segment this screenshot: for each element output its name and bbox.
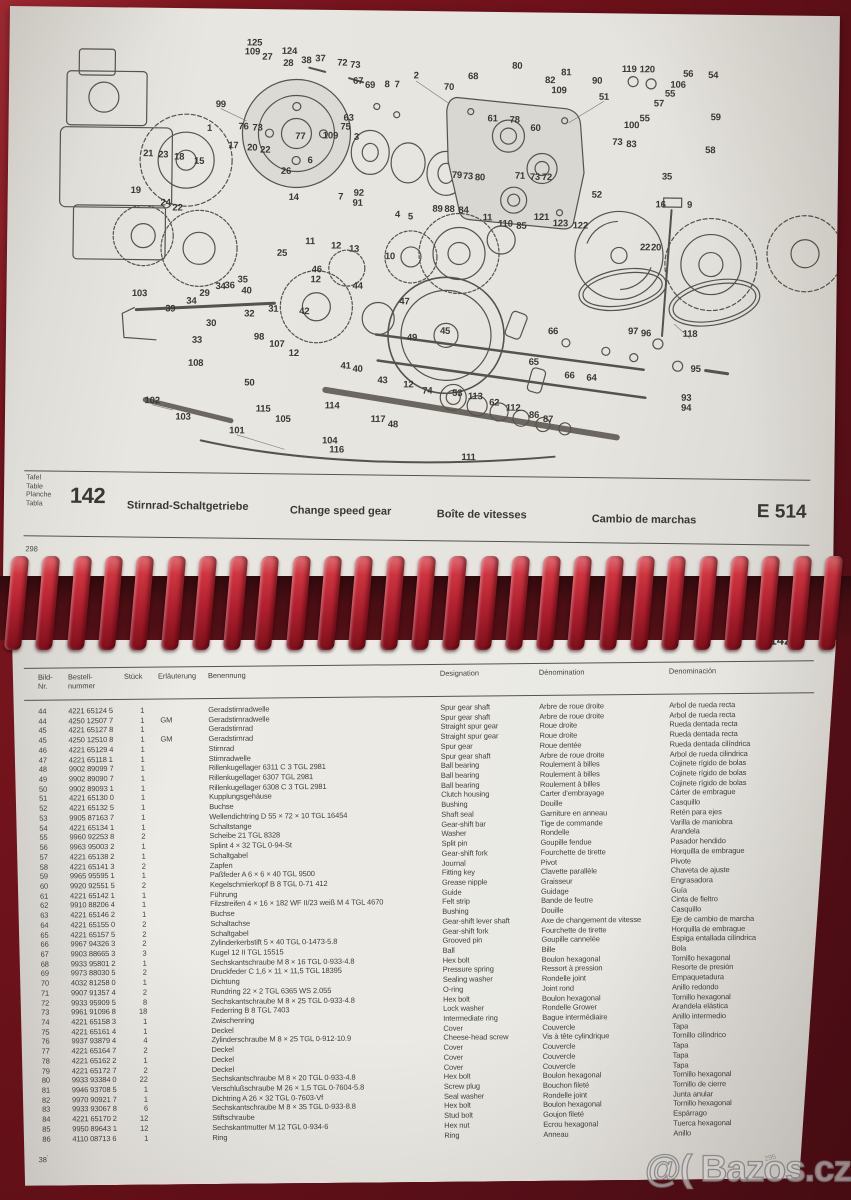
diagram-part-number: 22 xyxy=(640,242,650,253)
cell-bild-nr: 45 xyxy=(38,736,58,746)
cell-stueck: 2 xyxy=(118,920,146,930)
bazos-watermark: @( Bazos.cz xyxy=(645,1148,851,1190)
diagram-part-number: 69 xyxy=(365,80,375,91)
diagram-part-number: 17 xyxy=(228,140,238,151)
diagram-part-number: 48 xyxy=(388,419,398,430)
cell-stueck: 1 xyxy=(117,754,145,764)
diagram-part-number: 12 xyxy=(311,274,321,285)
diagram-part-number: 23 xyxy=(158,149,168,160)
cell-erlaeuterung: GM xyxy=(160,734,196,744)
cell-stueck: 8 xyxy=(119,997,147,1007)
cell-stueck: 2 xyxy=(119,968,147,978)
diagram-part-number: 109 xyxy=(245,46,260,57)
cell-bild-nr: 58 xyxy=(40,862,60,872)
cell-stueck: 1 xyxy=(117,813,145,823)
header-bestellnummer: Bestell- nummer xyxy=(68,673,95,690)
cell-bild-nr: 74 xyxy=(41,1018,61,1028)
diagram-part-number: 2 xyxy=(414,70,419,81)
cell-stueck: 1 xyxy=(116,725,144,735)
plate-number: 142 xyxy=(70,483,106,509)
diagram-part-number: 85 xyxy=(516,221,526,232)
diagram-part-number: 119 xyxy=(622,64,637,75)
diagram-part-number: 117 xyxy=(371,414,386,425)
diagram-part-number: 84 xyxy=(458,205,468,216)
diagram-part-number: 103 xyxy=(175,412,190,423)
plate-title-spanish: Cambio de marchas xyxy=(592,513,697,526)
cell-bild-nr: 70 xyxy=(41,979,61,989)
cell-stueck: 6 xyxy=(120,1104,148,1114)
cell-bild-nr: 75 xyxy=(41,1027,61,1037)
diagram-part-number: 53 xyxy=(452,388,462,399)
cell-stueck: 1 xyxy=(117,793,145,803)
cell-stueck: 22 xyxy=(120,1075,148,1085)
cell-bild-nr: 44 xyxy=(38,707,58,717)
diagram-part-number: 18 xyxy=(174,152,184,163)
parts-page: 142 Bild- Nr. Bestell- nummer Stück Erlä… xyxy=(11,596,845,1186)
diagram-part-number: 76 xyxy=(238,121,248,132)
diagram-part-number: 73 xyxy=(530,172,540,183)
cell-bild-nr: 47 xyxy=(39,755,59,765)
cell-stueck: 1 xyxy=(118,900,146,910)
diagram-part-number: 45 xyxy=(440,326,450,337)
cell-bild-nr: 84 xyxy=(42,1115,62,1125)
cell-stueck: 1 xyxy=(116,715,144,725)
cell-stueck: 1 xyxy=(118,842,146,852)
parts-table: 444221 65124 51GeradstirnradwelleSpur ge… xyxy=(12,699,844,1144)
diagram-part-number: 31 xyxy=(268,304,278,315)
diagram-part-number: 55 xyxy=(640,113,650,124)
diagram-part-number: 96 xyxy=(641,328,651,339)
cell-stueck: 1 xyxy=(118,890,146,900)
plate-word-labels: Tafel Table Planche Tabla xyxy=(26,474,52,508)
diagram-part-number: 6 xyxy=(308,155,313,166)
diagram-part-number: 3 xyxy=(354,132,359,143)
exploded-diagram-sketch xyxy=(3,6,840,576)
diagram-part-number: 86 xyxy=(529,410,539,421)
diagram-part-number: 37 xyxy=(315,53,325,64)
diagram-part-number: 27 xyxy=(262,52,272,63)
cell-stueck: 1 xyxy=(118,871,146,881)
cell-stueck: 1 xyxy=(119,958,147,968)
diagram-part-number: 99 xyxy=(216,99,226,110)
diagram-part-number: 58 xyxy=(705,145,715,156)
diagram-part-number: 22 xyxy=(260,145,270,156)
diagram-part-number: 112 xyxy=(506,403,521,414)
cell-bild-nr: 53 xyxy=(39,813,59,823)
cell-stueck: 2 xyxy=(118,861,146,871)
diagram-part-number: 88 xyxy=(444,204,454,215)
diagram-part-number: 32 xyxy=(244,308,254,319)
diagram-part-number: 42 xyxy=(299,306,309,317)
cell-designation: Ring xyxy=(444,1130,540,1141)
diagram-part-number: 105 xyxy=(275,414,290,425)
cell-stueck: 3 xyxy=(119,949,147,959)
cell-bild-nr: 50 xyxy=(39,784,59,794)
cell-stueck: 1 xyxy=(116,706,144,716)
cell-benennung: Ring xyxy=(212,1131,440,1143)
diagram-part-number: 43 xyxy=(377,375,387,386)
diagram-part-number: 52 xyxy=(592,190,602,201)
cell-bild-nr: 64 xyxy=(40,920,60,930)
diagram-part-number: 110 xyxy=(498,218,513,229)
cell-bild-nr: 68 xyxy=(41,959,61,969)
cell-bild-nr: 69 xyxy=(41,969,61,979)
diagram-part-number: 89 xyxy=(432,204,442,215)
cell-stueck: 2 xyxy=(118,929,146,939)
diagram-part-number: 109 xyxy=(551,85,566,96)
diagram-part-number: 61 xyxy=(488,113,498,124)
plate-title-german: Stirnrad-Schaltgetriebe xyxy=(127,499,249,512)
plate-title-french: Boîte de vitesses xyxy=(437,508,527,521)
header-stueck: Stück xyxy=(124,673,143,682)
diagram-part-number: 40 xyxy=(352,364,362,375)
diagram-part-number: 14 xyxy=(289,192,299,203)
plate-code: E 514 xyxy=(757,501,807,524)
diagram-part-number: 49 xyxy=(407,332,417,343)
diagram-part-number: 90 xyxy=(592,76,602,87)
diagram-part-number: 44 xyxy=(352,281,362,292)
diagram-part-number: 103 xyxy=(132,288,147,299)
cell-bild-nr: 49 xyxy=(39,775,59,785)
cell-bild-nr: 82 xyxy=(42,1095,62,1105)
diagram-part-number: 73 xyxy=(252,122,262,133)
diagram-part-number: 98 xyxy=(254,332,264,343)
diagram-part-number: 41 xyxy=(340,361,350,372)
catalog-photo: 1251092712428383772736769872991767377637… xyxy=(0,0,851,1200)
diagram-part-number: 121 xyxy=(534,212,549,223)
header-designation: Designation xyxy=(440,670,479,679)
cell-stueck: 1 xyxy=(117,764,145,774)
diagram-part-number: 81 xyxy=(561,67,571,78)
diagram-part-number: 83 xyxy=(626,139,636,150)
cell-stueck: 1 xyxy=(119,978,147,988)
diagram-part-number: 113 xyxy=(468,391,483,402)
diagram-part-number: 97 xyxy=(628,326,638,337)
diagram-part-number: 94 xyxy=(681,403,691,414)
diagram-part-number: 34 xyxy=(186,296,196,307)
cell-stueck: 2 xyxy=(119,988,147,998)
diagram-part-number: 25 xyxy=(277,248,287,259)
diagram-part-number: 12 xyxy=(403,379,413,390)
diagram-part-number: 36 xyxy=(224,280,234,291)
cell-erlaeuterung: GM xyxy=(160,715,196,725)
cell-bild-nr: 76 xyxy=(41,1037,61,1047)
cell-stueck: 18 xyxy=(119,1007,147,1017)
diagram-part-number: 57 xyxy=(654,98,664,109)
diagram-part-number: 115 xyxy=(256,404,271,415)
diagram-part-number: 22 xyxy=(172,203,182,214)
diagram-part-number: 66 xyxy=(548,326,558,337)
diagram-part-number: 124 xyxy=(282,46,297,57)
header-denominacion: Denominación xyxy=(669,667,716,676)
cell-stueck: 2 xyxy=(117,832,145,842)
diagram-part-number: 78 xyxy=(509,115,519,126)
diagram-part-number: 87 xyxy=(543,414,553,425)
cell-bild-nr: 85 xyxy=(42,1124,62,1134)
cell-bild-nr: 61 xyxy=(40,891,60,901)
diagram-part-number: 10 xyxy=(385,251,395,262)
cell-stueck: 1 xyxy=(117,822,145,832)
cell-bild-nr: 86 xyxy=(42,1134,62,1144)
diagram-part-number: 47 xyxy=(399,296,409,307)
diagram-part-number: 116 xyxy=(329,444,344,455)
cell-bild-nr: 73 xyxy=(41,1008,61,1018)
cell-stueck: 1 xyxy=(120,1094,148,1104)
diagram-part-number: 55 xyxy=(665,89,675,100)
diagram-part-number: 67 xyxy=(353,76,363,87)
diagram-part-number: 35 xyxy=(238,274,248,285)
diagram-part-number: 111 xyxy=(461,452,475,463)
diagram-part-number: 62 xyxy=(489,397,499,408)
diagram-part-number: 108 xyxy=(188,358,203,369)
diagram-part-number: 20 xyxy=(247,142,257,153)
cell-bild-nr: 81 xyxy=(42,1086,62,1096)
cell-stueck: 1 xyxy=(117,745,145,755)
diagram-part-number: 56 xyxy=(683,69,693,80)
cell-denominacion: Anillo xyxy=(673,1127,813,1138)
cell-stueck: 1 xyxy=(120,1133,148,1143)
cell-stueck: 1 xyxy=(120,1085,148,1095)
diagram-part-number: 15 xyxy=(194,156,204,167)
diagram-part-number: 68 xyxy=(468,71,478,82)
cell-bild-nr: 72 xyxy=(41,998,61,1008)
diagram-part-number: 75 xyxy=(340,122,350,133)
diagram-part-number: 38 xyxy=(301,55,311,66)
cell-bild-nr: 57 xyxy=(40,852,60,862)
header-bild-nr: Bild- Nr. xyxy=(38,674,53,691)
diagram-part-number: 7 xyxy=(338,192,343,203)
cell-bild-nr: 55 xyxy=(39,833,59,843)
diagram-part-number: 72 xyxy=(542,172,552,183)
cell-stueck: 12 xyxy=(120,1114,148,1124)
cell-stueck: 1 xyxy=(116,735,144,745)
cell-bild-nr: 60 xyxy=(40,881,60,891)
cell-bild-nr: 48 xyxy=(39,765,59,775)
diagram-part-number: 101 xyxy=(229,425,244,436)
cell-bild-nr: 46 xyxy=(39,745,59,755)
cell-stueck: 1 xyxy=(118,910,146,920)
header-erlaeuterung: Erläuterung xyxy=(158,672,196,681)
diagram-part-number: 60 xyxy=(530,123,540,134)
diagram-part-number: 9 xyxy=(687,200,692,211)
diagram-part-number: 16 xyxy=(655,199,665,210)
diagram-part-number: 70 xyxy=(444,82,454,93)
cell-bild-nr: 45 xyxy=(38,726,58,736)
diagram-part-number: 59 xyxy=(711,112,721,123)
cell-stueck: 2 xyxy=(120,1065,148,1075)
header-benennung: Benennung xyxy=(208,672,246,681)
diagram-part-number: 33 xyxy=(192,335,202,346)
diagram-part-number: 40 xyxy=(241,285,251,296)
diagram-part-number: 122 xyxy=(573,220,588,231)
diagram-part-number: 80 xyxy=(512,61,522,72)
top-page-number: 298 xyxy=(25,544,38,553)
diagram-part-number: 64 xyxy=(586,373,596,384)
diagram-part-number: 118 xyxy=(683,329,698,340)
diagram-part-number: 4 xyxy=(395,209,400,220)
plate-title-english: Change speed gear xyxy=(290,504,392,517)
diagram-part-number: 13 xyxy=(349,244,359,255)
diagram-part-number: 107 xyxy=(269,339,284,350)
diagram-part-number: 11 xyxy=(483,212,493,223)
diagram-part-number: 8 xyxy=(384,79,389,90)
cell-bild-nr: 83 xyxy=(42,1105,62,1115)
cell-stueck: 1 xyxy=(119,1026,147,1036)
diagram-part-number: 29 xyxy=(199,288,209,299)
cell-stueck: 2 xyxy=(118,881,146,891)
diagram-part-number: 102 xyxy=(144,395,159,406)
cell-bild-nr: 59 xyxy=(40,872,60,882)
diagram-part-number: 1 xyxy=(207,123,212,134)
diagram-part-number: 71 xyxy=(515,171,525,182)
diagram-part-number: 73 xyxy=(612,137,622,148)
diagram-part-number: 109 xyxy=(323,130,338,141)
cell-stueck: 2 xyxy=(119,1046,147,1056)
cell-bild-nr: 80 xyxy=(42,1076,62,1086)
cell-bild-nr: 52 xyxy=(39,804,59,814)
diagram-part-number: 54 xyxy=(708,70,718,81)
cell-stueck: 1 xyxy=(119,1017,147,1027)
diagram-part-number: 19 xyxy=(131,185,141,196)
diagram-part-number: 12 xyxy=(331,240,341,251)
cell-stueck: 1 xyxy=(117,783,145,793)
cell-bild-nr: 67 xyxy=(41,949,61,959)
diagram-part-number: 100 xyxy=(624,120,639,131)
diagram-part-number: 35 xyxy=(662,171,672,182)
diagram-part-number: 50 xyxy=(244,377,254,388)
diagram-part-number: 30 xyxy=(206,318,216,329)
diagram-part-number: 51 xyxy=(599,92,609,103)
diagram-part-number: 5 xyxy=(408,211,413,222)
diagram-part-number: 66 xyxy=(564,370,574,381)
diagram-part-number: 11 xyxy=(305,236,315,247)
cell-stueck: 1 xyxy=(117,803,145,813)
diagram-part-number: 73 xyxy=(350,60,360,71)
cell-bild-nr: 71 xyxy=(41,988,61,998)
diagram-part-number: 21 xyxy=(143,148,153,159)
cell-stueck: 1 xyxy=(117,774,145,784)
diagram-part-number: 120 xyxy=(640,64,655,75)
cell-bild-nr: 66 xyxy=(40,940,60,950)
cell-bild-nr: 77 xyxy=(41,1047,61,1057)
cell-stueck: 4 xyxy=(119,1036,147,1046)
diagram-part-number: 26 xyxy=(281,166,291,177)
diagram-part-number: 77 xyxy=(295,131,305,142)
diagram-page: 1251092712428383772736769872991767377637… xyxy=(3,6,840,608)
diagram-part-number: 73 xyxy=(463,171,473,182)
cell-bild-nr: 62 xyxy=(40,901,60,911)
diagram-part-number: 28 xyxy=(283,58,293,69)
cell-bild-nr: 51 xyxy=(39,794,59,804)
diagram-part-number: 12 xyxy=(289,348,299,359)
cell-stueck: 1 xyxy=(118,851,146,861)
diagram-part-number: 7 xyxy=(394,79,399,90)
cell-stueck: 1 xyxy=(120,1056,148,1066)
cell-bild-nr: 63 xyxy=(40,911,60,921)
diagram-part-number: 74 xyxy=(422,386,432,397)
diagram-part-number: 80 xyxy=(475,172,485,183)
cell-bild-nr: 56 xyxy=(40,843,60,853)
cell-bild-nr: 78 xyxy=(42,1056,62,1066)
diagram-part-number: 65 xyxy=(529,357,539,368)
diagram-part-number: 123 xyxy=(553,218,568,229)
diagram-part-number: 20 xyxy=(651,242,661,253)
diagram-part-number: 114 xyxy=(325,400,340,411)
cell-bild-nr: 54 xyxy=(39,823,59,833)
cell-bild-nr: 44 xyxy=(38,716,58,726)
diagram-part-number: 95 xyxy=(690,364,700,375)
bottom-page-number: 38' xyxy=(39,1155,48,1165)
diagram-part-number: 39 xyxy=(165,303,175,314)
cell-stueck: 2 xyxy=(118,939,146,949)
cell-stueck: 12 xyxy=(120,1124,148,1134)
diagram-part-number: 79 xyxy=(452,170,462,181)
diagram-part-number: 91 xyxy=(352,198,362,209)
cell-bild-nr: 79 xyxy=(42,1066,62,1076)
diagram-part-number: 24 xyxy=(160,197,170,208)
diagram-part-number: 72 xyxy=(337,58,347,69)
header-denomination: Dénomination xyxy=(539,668,585,677)
cell-bild-nr: 65 xyxy=(40,930,60,940)
cell-denomination: Anneau xyxy=(543,1128,669,1139)
